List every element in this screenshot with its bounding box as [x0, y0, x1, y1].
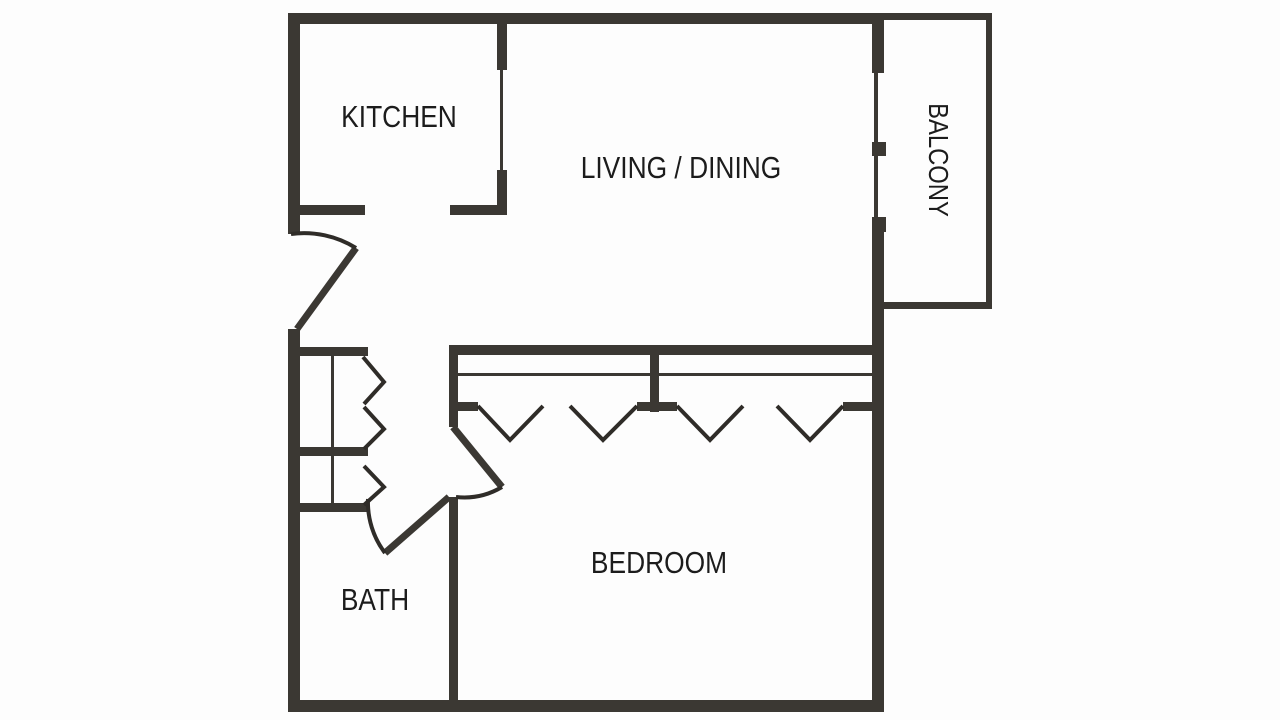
bath-north-wall [300, 503, 368, 512]
room-label-bedroom: BEDROOM [591, 545, 727, 581]
linen-door-1 [363, 357, 384, 404]
kitchen-wall-right-upper [497, 24, 507, 70]
floor-plan-drawing [0, 0, 1280, 720]
balcony-window-pane-1 [874, 73, 878, 142]
bedroom-west-wall-upper [449, 345, 458, 427]
wall-right-lower [872, 230, 884, 712]
bedroom-west-wall-lower [449, 497, 458, 712]
balcony-wall-top [884, 13, 992, 20]
kitchen-passthrough-line [500, 70, 503, 170]
room-label-kitchen: KITCHEN [341, 99, 457, 135]
linen-closet-wall-top [300, 347, 368, 356]
bifold-door-2 [570, 406, 637, 440]
bifold-door-4 [777, 406, 843, 440]
linen-door-2 [364, 407, 384, 449]
entry-door-leaf [297, 248, 356, 329]
bath-door-leaf [385, 497, 449, 553]
linen-closet-depth-line [331, 356, 334, 503]
room-label-balcony: BALCONY [922, 103, 954, 217]
wall-left-lower [288, 329, 300, 712]
bifold-door-3 [677, 406, 743, 440]
bedroom-closet-shelf-line [458, 373, 872, 376]
wall-top [288, 13, 884, 24]
bedroom-closet-stub-right [843, 402, 872, 411]
bedroom-closet-stub-left [449, 402, 478, 411]
balcony-wall-right [986, 13, 992, 309]
bedroom-door-swing-arc [456, 487, 502, 497]
folding-doors-group [363, 357, 843, 505]
bedroom-door-leaf [453, 427, 502, 487]
balcony-wall-bottom [884, 302, 992, 309]
kitchen-wall-bottom-right [450, 205, 507, 215]
wall-right-upper [872, 13, 884, 73]
living-south-wall [449, 345, 884, 355]
floor-plan: KITCHEN LIVING / DINING BALCONY BATH BED… [0, 0, 1280, 720]
bath-door-swing-arc [368, 499, 385, 553]
bedroom-closet-stub-center [637, 402, 677, 411]
entry-door-swing-arc [291, 233, 356, 248]
wall-left-upper [288, 13, 300, 234]
bifold-door-1 [478, 406, 543, 440]
room-label-living-dining: LIVING / DINING [581, 150, 782, 186]
room-label-bath: BATH [341, 582, 409, 618]
window-mullion-upper [872, 142, 886, 156]
wall-bottom [288, 700, 884, 712]
balcony-window-pane-2 [874, 156, 878, 217]
kitchen-wall-bottom-left [300, 205, 365, 215]
window-mullion-lower [872, 217, 886, 232]
